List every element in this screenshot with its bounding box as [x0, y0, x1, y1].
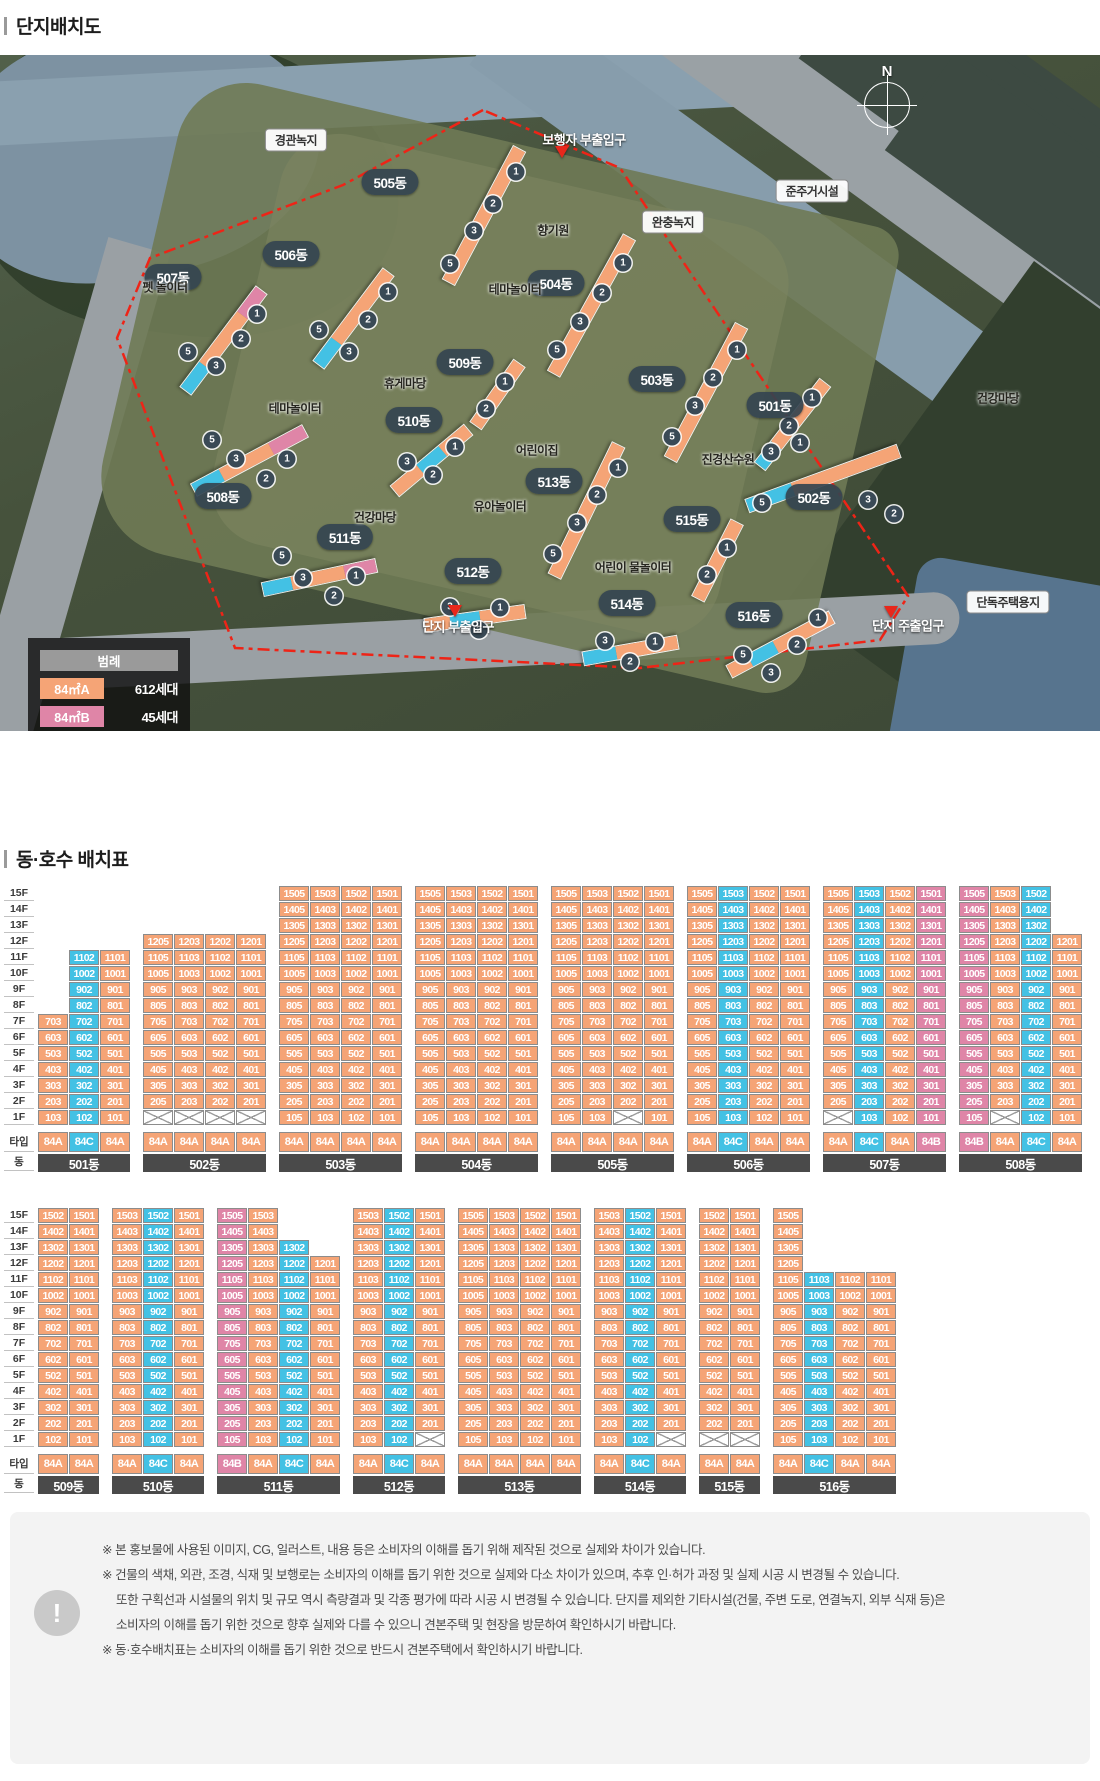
- unit-cell: 1505: [959, 886, 989, 901]
- unit-cell: 905: [823, 982, 853, 997]
- unit-cell: 1302: [613, 918, 643, 933]
- building-name-bar: 501동: [38, 1154, 130, 1172]
- unit-cell: 1402: [38, 1224, 68, 1239]
- floor-row: 1105110311021101: [823, 950, 947, 966]
- floor-row: 505503502501: [773, 1368, 897, 1384]
- unit-cell: [100, 918, 130, 933]
- floor-row: 305303302301: [217, 1400, 341, 1416]
- unit-line-badge: 2: [485, 196, 502, 213]
- unit-cell: 1502: [699, 1208, 729, 1223]
- floor-row: 403402401: [38, 1062, 131, 1078]
- floor-label-column: 15F14F13F12F11F10F9F8F7F6F5F4F3F2F1F타입동: [4, 886, 34, 1172]
- unit-cell: 1105: [823, 950, 853, 965]
- floor-row: 505503502501: [458, 1368, 582, 1384]
- unit-cell: 703: [446, 1014, 476, 1029]
- building-stack: 1205120312021201110511031102110110051003…: [143, 886, 267, 1172]
- unit-cell: 605: [458, 1352, 488, 1367]
- unit-cell: 503: [990, 1046, 1020, 1061]
- floor-row: 805803802801: [143, 998, 267, 1014]
- unit-cell: 203: [38, 1094, 68, 1109]
- floor-row: 305303302301: [458, 1400, 582, 1416]
- unit-cell: 501: [236, 1046, 266, 1061]
- unit-cell: 303: [990, 1078, 1020, 1093]
- unit-cell: 203: [854, 1094, 884, 1109]
- unit-cell: 805: [458, 1320, 488, 1335]
- unit-cell: 801: [1052, 998, 1082, 1013]
- unit-cell: 601: [100, 1030, 130, 1045]
- unit-cell: 1405: [551, 902, 581, 917]
- floor-row: 1505150315021501: [687, 886, 811, 902]
- floor-row: 120312021201: [353, 1256, 446, 1272]
- unit-cell: 203: [990, 1094, 1020, 1109]
- floor-row: 203202201: [112, 1416, 205, 1432]
- unit-cell: 501: [644, 1046, 674, 1061]
- floor-row: 15021501: [38, 1208, 100, 1224]
- unit-cell: 602: [341, 1030, 371, 1045]
- unit-cell: 1102: [38, 1272, 68, 1287]
- unit-type-cell: 84C: [1021, 1132, 1051, 1152]
- unit-cell: 305: [279, 1078, 309, 1093]
- unit-cell: 1303: [112, 1240, 142, 1255]
- unit-cell: 301: [1052, 1078, 1082, 1093]
- floor-row: 905903902901: [823, 982, 947, 998]
- unit-cell: 403: [718, 1062, 748, 1077]
- unit-cell: 1203: [594, 1256, 624, 1271]
- unit-cell: 302: [699, 1400, 729, 1415]
- unit-cell: 1303: [310, 918, 340, 933]
- no-unit-cell: [990, 1110, 1020, 1125]
- unit-cell: 803: [446, 998, 476, 1013]
- floor-row: 805803802801: [279, 998, 403, 1014]
- unit-cell: 1002: [143, 1288, 173, 1303]
- unit-cell: 1505: [217, 1208, 247, 1223]
- building-stack: 1505150314051403130513031302120512031202…: [217, 1208, 341, 1494]
- facility-label: 테마놀이터: [269, 400, 322, 417]
- unit-cell: 305: [823, 1078, 853, 1093]
- unit-line-badge: 3: [228, 451, 245, 468]
- type-row: 84B84A84C84A: [217, 1454, 341, 1475]
- unit-cell: 1103: [718, 950, 748, 965]
- unit-cell: 805: [773, 1320, 803, 1335]
- unit-cell: 303: [112, 1400, 142, 1415]
- unit-cell: 901: [730, 1304, 760, 1319]
- floor-row: 703702701: [112, 1336, 205, 1352]
- unit-cell: 703: [112, 1336, 142, 1351]
- unit-cell: 602: [835, 1352, 865, 1367]
- unit-type-cell: 84A: [508, 1132, 538, 1152]
- unit-cell: 501: [551, 1368, 581, 1383]
- unit-cell: 1205: [959, 934, 989, 949]
- zone-label: 경관녹지: [265, 129, 327, 152]
- unit-cell: 202: [520, 1416, 550, 1431]
- unit-cell: 503: [353, 1368, 383, 1383]
- unit-cell: 503: [112, 1368, 142, 1383]
- unit-cell: 203: [248, 1416, 278, 1431]
- unit-cell: 1403: [582, 902, 612, 917]
- unit-cell: 403: [248, 1384, 278, 1399]
- unit-cell: 202: [699, 1416, 729, 1431]
- floor-row: 805803802801: [458, 1320, 582, 1336]
- floor-row: 505503502501: [551, 1046, 675, 1062]
- unit-cell: 1503: [112, 1208, 142, 1223]
- unit-cell: 1102: [749, 950, 779, 965]
- unit-cell: 902: [69, 982, 99, 997]
- unit-cell: 405: [959, 1062, 989, 1077]
- unit-cell: 903: [854, 982, 884, 997]
- unit-cell: 1201: [1052, 934, 1082, 949]
- unit-type-cell: 84C: [718, 1132, 748, 1152]
- dong-row-label: 동: [4, 1475, 34, 1493]
- building-name-bar: 512동: [353, 1476, 445, 1494]
- unit-cell: [1052, 918, 1082, 933]
- unit-cell: 603: [353, 1352, 383, 1367]
- unit-cell: 503: [38, 1046, 68, 1061]
- unit-cell: 1005: [551, 966, 581, 981]
- unit-cell: 202: [384, 1416, 414, 1431]
- unit-cell: 402: [1021, 1062, 1051, 1077]
- floor-row: 1105110311021101: [279, 950, 403, 966]
- unit-cell: 201: [174, 1416, 204, 1431]
- unit-cell: 501: [1052, 1046, 1082, 1061]
- floor-row: 1105110311021101: [143, 950, 267, 966]
- unit-cell: [236, 886, 266, 901]
- building-label: 509동: [437, 349, 494, 375]
- unit-cell: 1101: [656, 1272, 686, 1287]
- unit-cell: 902: [749, 982, 779, 997]
- floor-row: 205203202201: [279, 1094, 403, 1110]
- unit-cell: 702: [143, 1336, 173, 1351]
- unit-type-cell: 84C: [279, 1454, 309, 1474]
- building-name-bar: 503동: [279, 1154, 402, 1172]
- floor-row: 703702701: [353, 1336, 446, 1352]
- unit-cell: 1002: [613, 966, 643, 981]
- unit-cell: 902: [205, 982, 235, 997]
- floor-row: 110311021101: [594, 1272, 687, 1288]
- unit-cell: 1102: [384, 1272, 414, 1287]
- unit-cell: 903: [112, 1304, 142, 1319]
- unit-cell: 401: [866, 1384, 896, 1399]
- building-stack: 1505150315021501140514031402140113051303…: [551, 886, 675, 1172]
- unit-cell: 1503: [310, 886, 340, 901]
- unit-cell: 903: [174, 982, 204, 997]
- unit-cell: 801: [508, 998, 538, 1013]
- unit-cell: 1503: [582, 886, 612, 901]
- floor-row: 405403402401: [415, 1062, 539, 1078]
- type-row-label: 타입: [4, 1454, 34, 1474]
- floor-row: 405403402401: [773, 1384, 897, 1400]
- unit-type-cell: 84C: [625, 1454, 655, 1474]
- floor-row: 805803802801: [687, 998, 811, 1014]
- unit-cell: 205: [773, 1416, 803, 1431]
- floor-row: 905903902901: [773, 1304, 897, 1320]
- unit-cell: 103: [854, 1110, 884, 1125]
- unit-cell: 605: [217, 1352, 247, 1367]
- floor-label-column: 15F14F13F12F11F10F9F8F7F6F5F4F3F2F1F타입동: [4, 1208, 34, 1494]
- unit-cell: 1003: [854, 966, 884, 981]
- unit-cell: 902: [143, 1304, 173, 1319]
- unit-cell: 1503: [248, 1208, 278, 1223]
- unit-cell: 1402: [625, 1224, 655, 1239]
- unit-cell: 1201: [372, 934, 402, 949]
- unit-type-cell: 84A: [353, 1454, 383, 1474]
- building-name-bar: 509동: [38, 1476, 99, 1494]
- unit-cell: 1301: [780, 918, 810, 933]
- unit-cell: 1105: [959, 950, 989, 965]
- unit-cell: 503: [718, 1046, 748, 1061]
- unit-cell: 901: [916, 982, 946, 997]
- building-label: 510동: [386, 407, 443, 433]
- unit-type-cell: 84A: [372, 1132, 402, 1152]
- unit-cell: 1101: [1052, 950, 1082, 965]
- unit-cell: 902: [613, 982, 643, 997]
- unit-type-cell: 84A: [835, 1454, 865, 1474]
- unit-line-badge: 3: [860, 492, 877, 509]
- unit-cell: 801: [656, 1320, 686, 1335]
- unit-cell: [143, 902, 173, 917]
- unit-cell: 102: [477, 1110, 507, 1125]
- unit-cell: 303: [38, 1078, 68, 1093]
- unit-cell: 1502: [1021, 886, 1051, 901]
- unit-cell: 702: [477, 1014, 507, 1029]
- unit-cell: 602: [69, 1030, 99, 1045]
- unit-cell: 1003: [718, 966, 748, 981]
- unit-cell: 1001: [1052, 966, 1082, 981]
- floor-row: 1305130313021301: [823, 918, 947, 934]
- unit-cell: 801: [310, 1320, 340, 1335]
- unit-cell: 601: [415, 1352, 445, 1367]
- unit-cell: [236, 902, 266, 917]
- unit-cell: 1302: [749, 918, 779, 933]
- unit-cell: 1202: [613, 934, 643, 949]
- floor-row: 13021301: [38, 1240, 100, 1256]
- unit-cell: 701: [415, 1336, 445, 1351]
- unit-cell: 301: [236, 1078, 266, 1093]
- unit-cell: 1005: [959, 966, 989, 981]
- unit-cell: 505: [458, 1368, 488, 1383]
- building-stack: 1505150315021405140314021305130313021205…: [959, 886, 1083, 1172]
- unit-line-badge: 2: [705, 370, 722, 387]
- unit-cell: 202: [885, 1094, 915, 1109]
- unit-cell: 603: [446, 1030, 476, 1045]
- unit-cell: 105: [415, 1110, 445, 1125]
- unit-cell: 1405: [959, 902, 989, 917]
- unit-cell: 201: [236, 1094, 266, 1109]
- building-stack: 1503150215011403140214011303130213011203…: [353, 1208, 446, 1494]
- unit-cell: 702: [749, 1014, 779, 1029]
- unit-cell: 1002: [1021, 966, 1051, 981]
- unit-cell: 202: [341, 1094, 371, 1109]
- unit-cell: 601: [916, 1030, 946, 1045]
- unit-cell: 102: [38, 1432, 68, 1447]
- unit-cell: 301: [551, 1400, 581, 1415]
- unit-cell: 602: [1021, 1030, 1051, 1045]
- floor-row: 705703702701: [415, 1014, 539, 1030]
- unit-cell: [38, 998, 68, 1013]
- unit-cell: 1405: [687, 902, 717, 917]
- unit-cell: 405: [279, 1062, 309, 1077]
- unit-cell: 1301: [372, 918, 402, 933]
- unit-cell: 303: [446, 1078, 476, 1093]
- floor-row: 1505: [773, 1208, 897, 1224]
- floor-label: 4F: [4, 1062, 34, 1077]
- floor-row: 102101: [38, 1432, 100, 1448]
- floor-row: 105103102101: [773, 1432, 897, 1448]
- unit-cell: 1301: [174, 1240, 204, 1255]
- building-label: 501동: [747, 392, 804, 418]
- unit-cell: 701: [780, 1014, 810, 1029]
- unit-cell: 1505: [687, 886, 717, 901]
- unit-type-cell: 84B: [959, 1132, 989, 1152]
- disclaimer-line: 또한 구획선과 시설물의 위치 및 규모 역시 측량결과 및 각종 평가에 따라…: [102, 1588, 1070, 1613]
- legend-count: 45세대: [104, 707, 178, 726]
- unit-cell: 703: [174, 1014, 204, 1029]
- unit-cell: 1203: [310, 934, 340, 949]
- floor-row: 505503502501: [415, 1046, 539, 1062]
- type-row: 84A84A84A84A: [279, 1132, 403, 1153]
- unit-line-badge: 2: [478, 401, 495, 418]
- floor-row: 905903902901: [143, 982, 267, 998]
- unit-cell: 205: [143, 1094, 173, 1109]
- unit-cell: 903: [582, 982, 612, 997]
- floor-row: 1505150315021501: [551, 886, 675, 902]
- unit-cell: 801: [372, 998, 402, 1013]
- unit-cell: 701: [310, 1336, 340, 1351]
- floor-row: 305303302301: [415, 1078, 539, 1094]
- floor-row: 203202201: [594, 1416, 687, 1432]
- unit-cell: 1001: [916, 966, 946, 981]
- unit-cell: 1102: [613, 950, 643, 965]
- unit-cell: 402: [749, 1062, 779, 1077]
- unit-cell: 601: [310, 1352, 340, 1367]
- unit-cell: 1501: [415, 1208, 445, 1223]
- unit-cell: 1403: [112, 1224, 142, 1239]
- unit-cell: 1503: [446, 886, 476, 901]
- unit-cell: 1002: [384, 1288, 414, 1303]
- floor-row: 110311021101: [112, 1272, 205, 1288]
- floor-row: 1305130313021301: [279, 918, 403, 934]
- unit-cell: 901: [656, 1304, 686, 1319]
- unit-cell: 305: [687, 1078, 717, 1093]
- unit-cell: 1203: [582, 934, 612, 949]
- unit-cell: 1302: [1021, 918, 1051, 933]
- unit-line-badge: 2: [233, 331, 250, 348]
- legend-swatch: 84㎡A: [40, 678, 104, 699]
- unit-cell: 1302: [625, 1240, 655, 1255]
- unit-cell: 802: [835, 1320, 865, 1335]
- floor-row: 103102101: [823, 1110, 947, 1126]
- stack-table-row-1: 15F14F13F12F11F10F9F8F7F6F5F4F3F2F1F타입동1…: [4, 886, 1095, 1172]
- floor-row: 803802801: [594, 1320, 687, 1336]
- building-label: 511동: [317, 524, 373, 550]
- facility-label: 펫 놀이터: [143, 279, 188, 296]
- unit-cell: 1403: [489, 1224, 519, 1239]
- unit-cell: 601: [1052, 1030, 1082, 1045]
- unit-cell: 505: [687, 1046, 717, 1061]
- unit-cell: 301: [730, 1400, 760, 1415]
- building-name-bar: 515동: [699, 1476, 760, 1494]
- floor-row: 13021301: [699, 1240, 761, 1256]
- unit-cell: 1201: [644, 934, 674, 949]
- unit-cell: 603: [174, 1030, 204, 1045]
- floor-row: 140314021401: [112, 1224, 205, 1240]
- unit-cell: 501: [916, 1046, 946, 1061]
- unit-cell: 405: [217, 1384, 247, 1399]
- floor-row: 203202201: [353, 1416, 446, 1432]
- unit-cell: 501: [310, 1368, 340, 1383]
- unit-cell: 1101: [69, 1272, 99, 1287]
- unit-cell: 1103: [353, 1272, 383, 1287]
- floor-row: [143, 902, 267, 918]
- unit-cell: 102: [835, 1432, 865, 1447]
- floor-row: 15021501: [699, 1208, 761, 1224]
- floor-row: 602601: [38, 1352, 100, 1368]
- unit-cell: 402: [205, 1062, 235, 1077]
- unit-cell: 701: [730, 1336, 760, 1351]
- unit-cell: 803: [248, 1320, 278, 1335]
- floor-row: 605603602601: [823, 1030, 947, 1046]
- unit-cell: 901: [310, 1304, 340, 1319]
- unit-cell: [866, 1256, 896, 1271]
- floor-row: 1405140314021401: [279, 902, 403, 918]
- unit-cell: [38, 886, 68, 901]
- unit-cell: [866, 1208, 896, 1223]
- unit-cell: 401: [916, 1062, 946, 1077]
- unit-line-badge: 1: [348, 568, 365, 585]
- unit-cell: 403: [854, 1062, 884, 1077]
- floor-row: 14021401: [699, 1224, 761, 1240]
- unit-cell: 302: [885, 1078, 915, 1093]
- unit-cell: 103: [446, 1110, 476, 1125]
- unit-cell: 502: [384, 1368, 414, 1383]
- page-title-text: 단지배치도: [16, 12, 101, 39]
- unit-cell: 1302: [520, 1240, 550, 1255]
- unit-cell: 401: [174, 1384, 204, 1399]
- unit-cell: 103: [804, 1432, 834, 1447]
- unit-cell: 805: [551, 998, 581, 1013]
- unit-line-badge: 3: [466, 223, 483, 240]
- unit-cell: 902: [625, 1304, 655, 1319]
- unit-cell: 1301: [69, 1240, 99, 1255]
- building-name-bar: 514동: [594, 1476, 686, 1494]
- floor-row: 1105110311021101: [458, 1272, 582, 1288]
- unit-cell: 1505: [773, 1208, 803, 1223]
- unit-line-badge: 2: [360, 312, 377, 329]
- floor-row: 305303302301: [551, 1078, 675, 1094]
- unit-cell: 803: [582, 998, 612, 1013]
- floor-row: 905903902901: [687, 982, 811, 998]
- type-row: 84A84A84A84A: [458, 1454, 582, 1475]
- unit-cell: 503: [804, 1368, 834, 1383]
- floor-row: 503502501: [38, 1046, 131, 1062]
- floor-row: 1005100310021001: [217, 1288, 341, 1304]
- unit-cell: 1102: [477, 950, 507, 965]
- unit-cell: 1002: [341, 966, 371, 981]
- unit-cell: 203: [804, 1416, 834, 1431]
- unit-cell: 401: [780, 1062, 810, 1077]
- unit-cell: 405: [687, 1062, 717, 1077]
- section-title-text: 동·호수 배치표: [16, 845, 129, 872]
- unit-cell: 705: [551, 1014, 581, 1029]
- unit-type-cell: 84A: [613, 1132, 643, 1152]
- unit-cell: 602: [384, 1352, 414, 1367]
- unit-cell: 101: [174, 1432, 204, 1447]
- unit-cell: 1401: [916, 902, 946, 917]
- unit-cell: 402: [384, 1384, 414, 1399]
- unit-cell: 603: [854, 1030, 884, 1045]
- unit-cell: 1303: [446, 918, 476, 933]
- floor-row: 303302301: [38, 1078, 131, 1094]
- unit-cell: 1001: [656, 1288, 686, 1303]
